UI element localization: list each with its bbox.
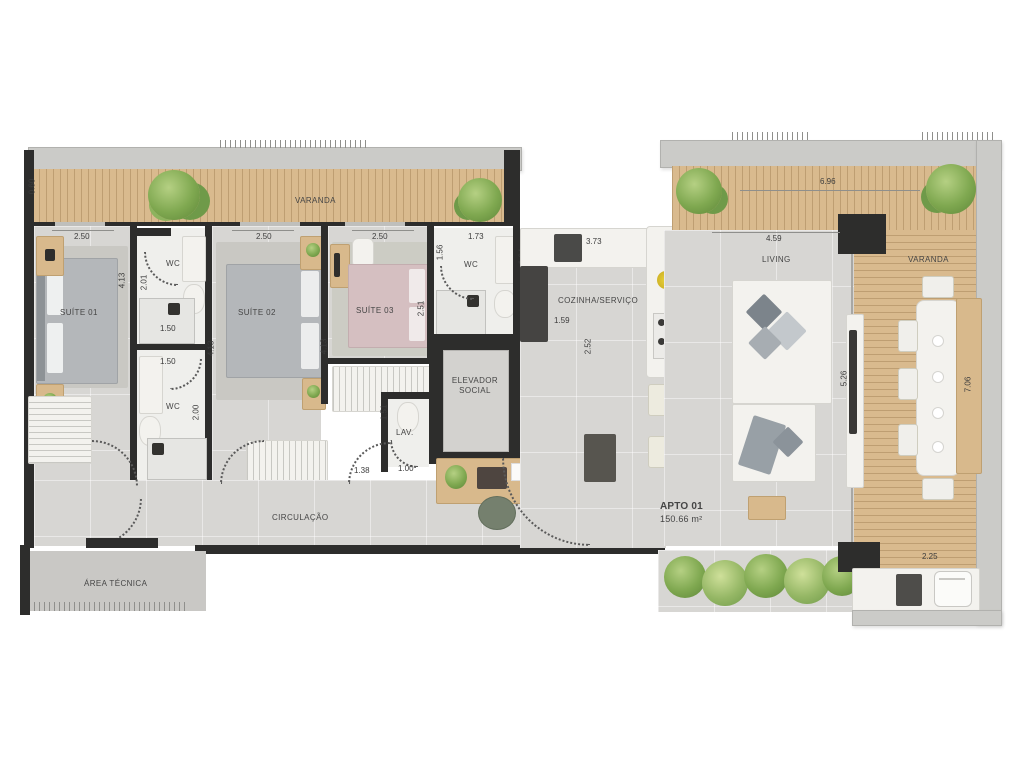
sofa [732,280,832,404]
wall [381,392,433,399]
dining-chair [898,368,918,400]
dimension: 1.00 [398,464,414,473]
wall [20,545,30,615]
dimension: 1.73 [468,232,484,241]
plant-icon [307,385,320,398]
tv [334,253,340,277]
shower [147,438,207,480]
circulacao-label: CIRCULAÇÃO [272,513,328,523]
wardrobe [28,396,92,464]
plant-icon [926,164,976,214]
shower-head [152,443,164,455]
outer-wall-bottom-right [852,610,1002,626]
dimension: 1.50 [160,357,176,366]
vent-hatch [34,602,186,611]
dimension: 1.56 [436,243,445,263]
suite01-label: SUÍTE 01 [60,308,98,318]
elevator-cab [443,350,509,452]
apto-label: APTO 01 [660,501,703,513]
wall [130,226,137,482]
plate [932,441,944,453]
tv [849,330,857,434]
dining-chair [898,424,918,456]
dim-line [352,230,414,231]
wall [86,538,158,548]
sink [182,236,206,282]
door-arc [348,442,390,484]
dining-table [916,300,960,476]
dimension: 1.59 [554,316,570,325]
dimension: 2.50 [256,232,272,241]
grill-handle [939,578,965,580]
dim-line [52,230,114,231]
dining-chair [922,276,954,298]
plant-icon [306,243,320,257]
wc-bottom-label: WC [166,402,180,412]
railing-hatch [922,132,994,140]
wall [838,214,886,254]
plate [932,335,944,347]
bed [36,258,118,384]
dimension: 4.13 [118,271,127,291]
shower-head [168,303,180,315]
lav-label: LAV. [396,428,414,438]
plate [932,371,944,383]
living-label: LIVING [762,255,791,265]
headboard [37,259,45,381]
wall [513,224,520,352]
dimension: 7.06 [964,375,973,395]
plant-icon [458,178,502,222]
plant-icon [744,554,788,598]
dimension: 2.00 [192,403,201,423]
railing-hatch [732,132,808,140]
dresser [330,244,350,288]
dimension: 2.51 [417,299,426,319]
grill [934,571,972,607]
dimension: 1.50 [160,324,176,333]
plate [932,407,944,419]
dimension: 3.73 [586,237,602,246]
pillow [301,323,319,369]
dimension: 6.96 [820,177,836,186]
railing-hatch [220,140,368,148]
wall [504,150,520,226]
plant-icon [676,168,722,214]
dining-chair [922,478,954,500]
dimension: 2.01 [140,273,149,293]
appliance-column [520,266,548,342]
pillow [301,271,319,317]
dim-line [712,232,840,233]
bed [226,264,326,378]
nightstand [36,236,64,276]
varanda-top-deck [32,169,518,226]
dimension: 2.25 [922,552,938,561]
wc-top-label: WC [166,259,180,269]
suite02-label: SUÍTE 02 [238,308,276,318]
dimension: 2.50 [74,232,90,241]
dimension: 4.13 [320,337,329,357]
pillow [47,323,63,373]
dimension: 4.59 [766,234,782,243]
desk-chair [478,496,516,530]
area-tecnica-label: ÁREA TÉCNICA [84,579,147,589]
dimension: 5.26 [840,369,849,389]
plant-icon [445,465,467,489]
dim-line [740,190,920,191]
outer-wall-top-left [28,147,522,171]
apto-area: 150.66 m² [660,514,702,525]
plant-icon [148,170,200,220]
dimension: 0.60 [28,177,37,197]
wall [328,358,432,364]
dimension: 4.13 [207,339,216,359]
lamp [45,249,55,261]
coffee-table [748,496,786,520]
wall [137,228,171,236]
plant-icon [664,556,706,598]
wc3-label: WC [464,260,478,270]
floor-plan: VARANDA SUÍTE 01 2.50 4.13 0.60 WC 2.01 … [0,0,1024,768]
varanda-right-label: VARANDA [908,255,949,265]
cozinha-label: COZINHA/SERVIÇO [558,296,638,306]
dim-line [232,230,294,231]
dining-chair [898,320,918,352]
wall [24,150,34,548]
varanda-top-label: VARANDA [295,196,336,206]
suite03-label: SUÍTE 03 [356,306,394,316]
dimension: 2.50 [372,232,388,241]
sofa-chaise [732,404,816,482]
plant-icon [702,560,748,606]
dimension: 1.51 [380,403,389,423]
bbq-sink [896,574,922,606]
shower [139,298,195,344]
elevador-label: ELEVADOR SOCIAL [446,376,504,395]
kitchen-sink [554,234,582,262]
dimension: 2.52 [584,337,593,357]
wall [321,226,328,404]
